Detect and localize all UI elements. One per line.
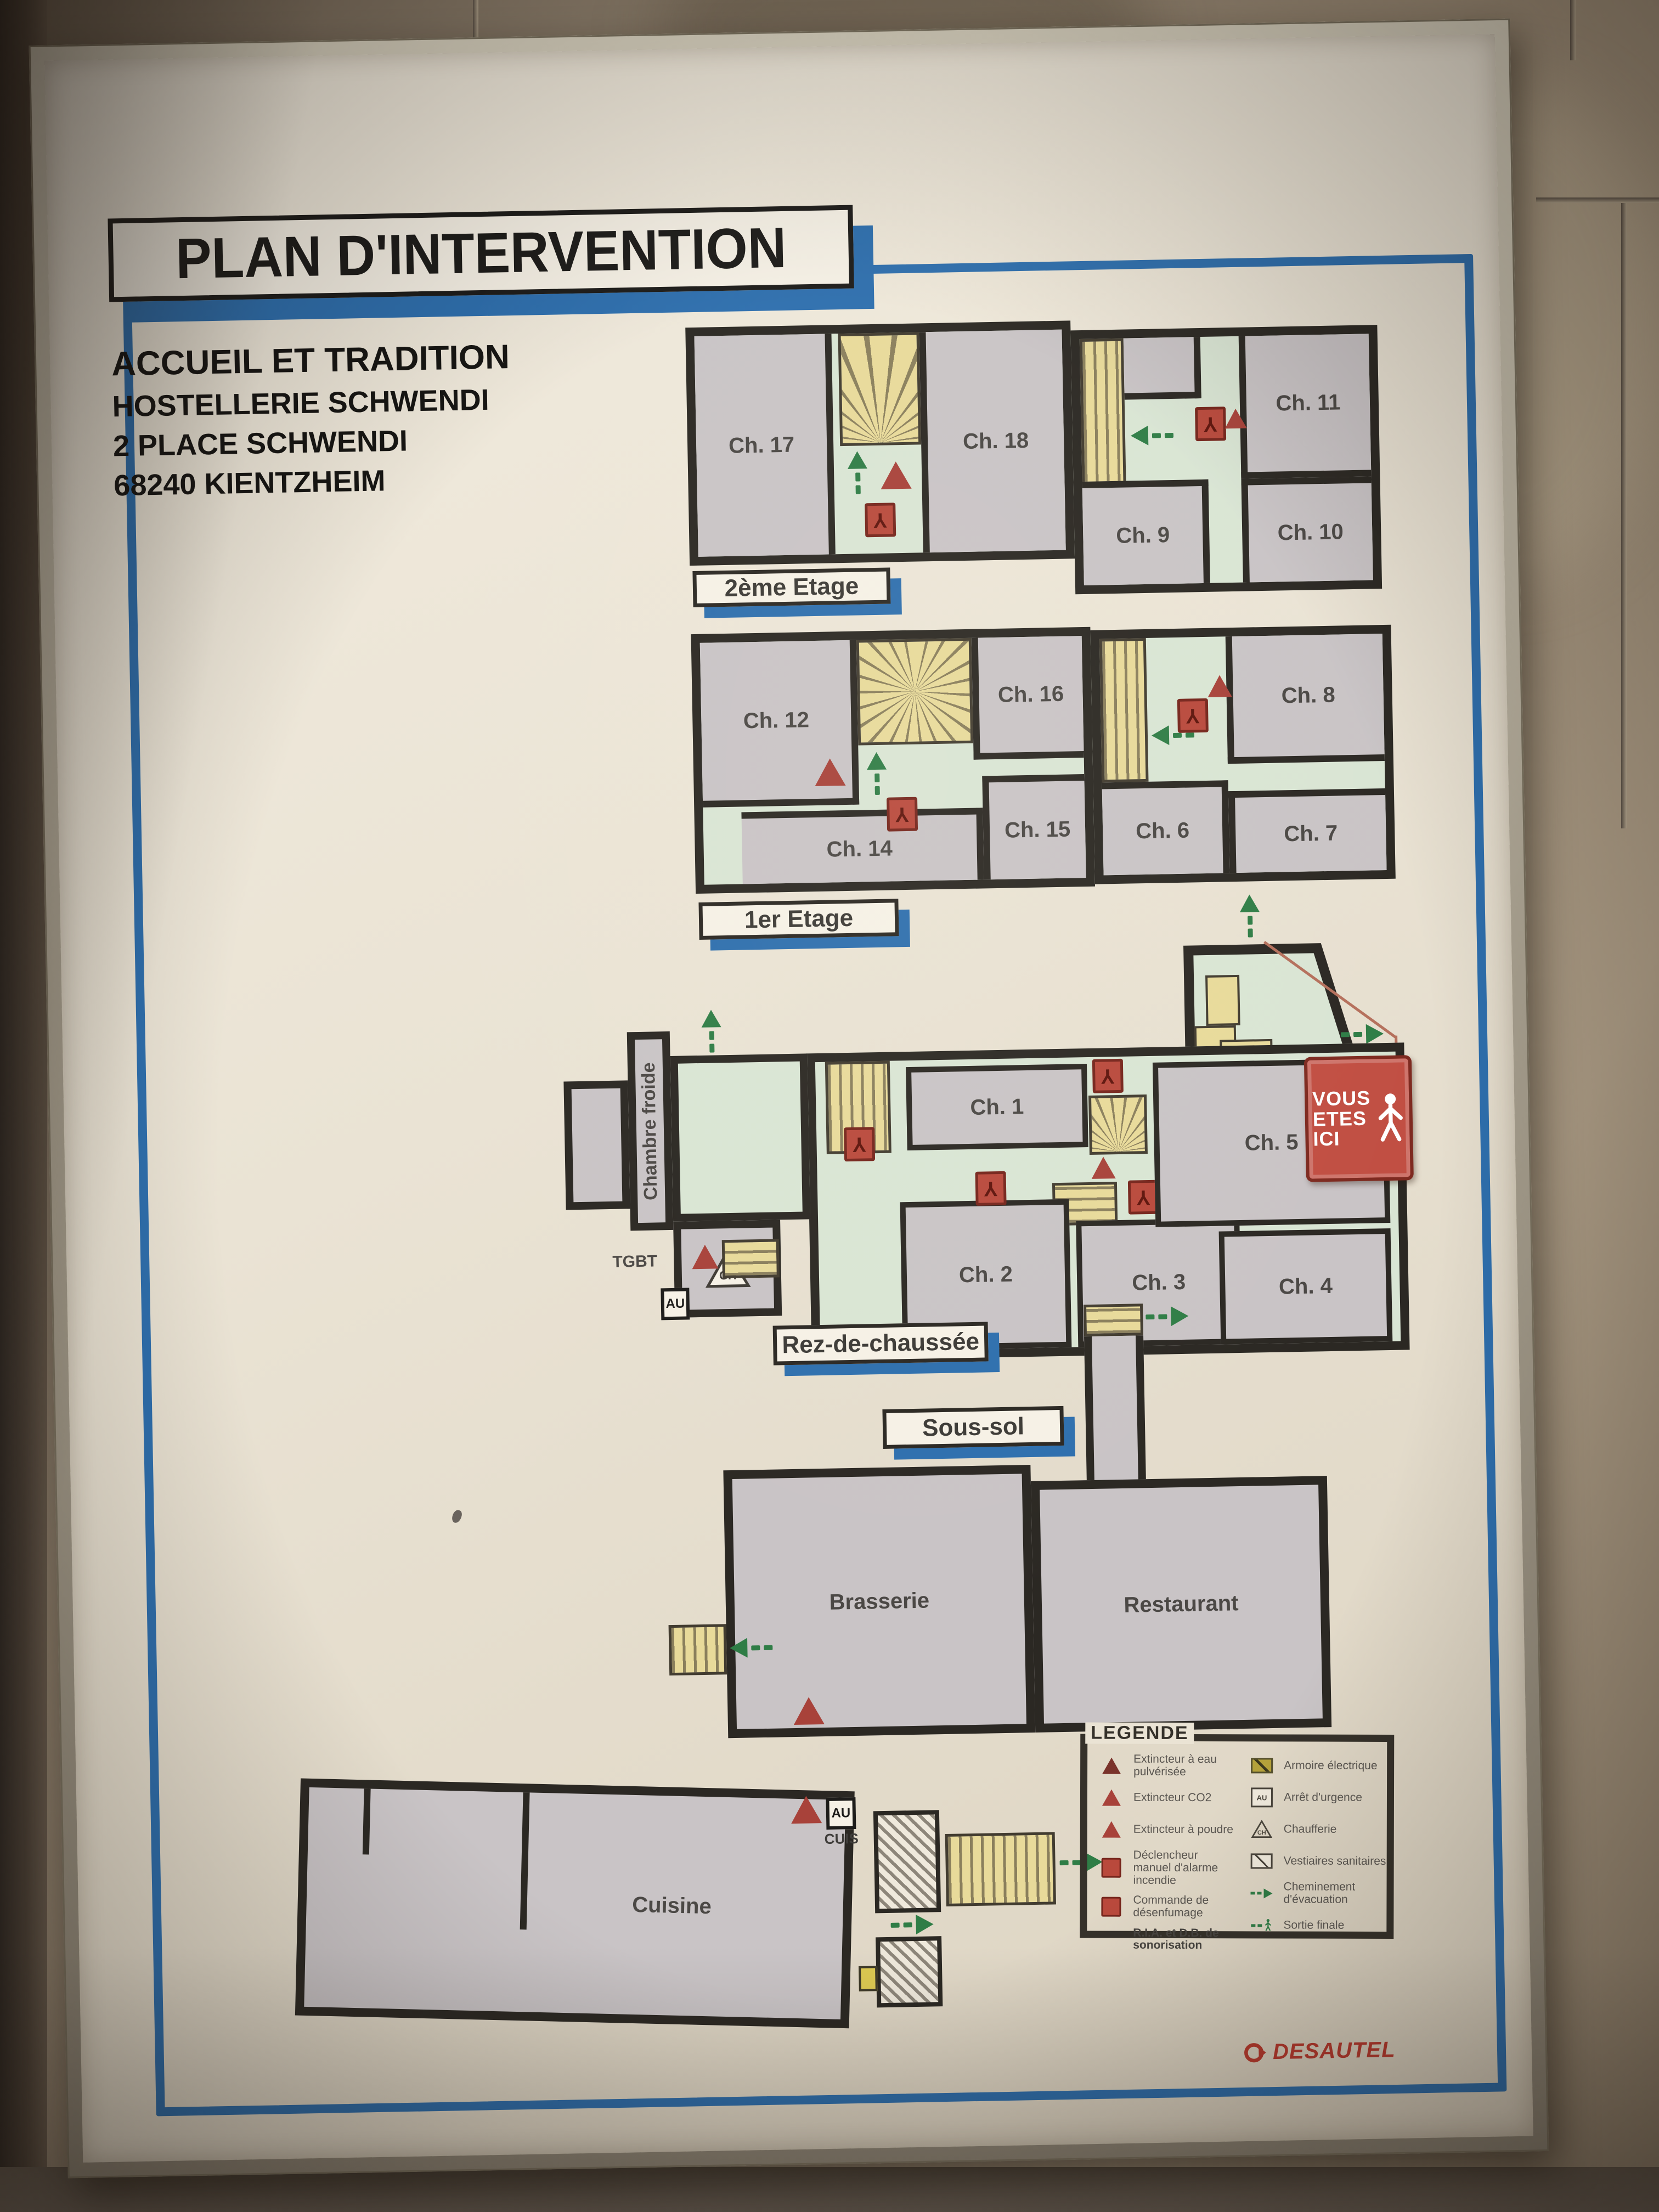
mortar-joint (1621, 198, 1627, 828)
photo-of-framed-plan: PLAN D'INTERVENTION ACCUEIL ET TRADITION… (0, 0, 1659, 2212)
smoke-control-icon (1097, 1897, 1125, 1917)
legend-item: AU Arrêt d'urgence (1248, 1785, 1388, 1810)
room-ch17: Ch. 17 (695, 334, 836, 557)
vestiaires-hatched-area (873, 1810, 941, 1913)
emergency-stop-kitchen-box: AU (826, 1797, 856, 1830)
alarm-call-point-icon: Y (844, 1127, 875, 1161)
cuisine-partition-wall (363, 1788, 371, 1854)
brand-name: DESAUTEL (1273, 2038, 1396, 2064)
legend-item: Cheminement d'évacuation (1247, 1881, 1387, 1906)
room-ch18: Ch. 18 (919, 330, 1065, 553)
room-brasserie: Brasserie (723, 1465, 1035, 1738)
legend-item: Extincteur CO2 (1097, 1786, 1235, 1810)
room-chambre-froide: Chambre froide (627, 1031, 674, 1231)
extinguisher-triangle-icon (692, 1244, 719, 1269)
room-ch11: Ch. 11 (1239, 334, 1372, 478)
rdc-left-corridor (670, 1053, 810, 1222)
legend-item-label: Extincteur à poudre (1133, 1824, 1233, 1836)
address-line-2: HOSTELLERIE SCHWENDI (112, 383, 489, 424)
room-label: Ch. 16 (998, 681, 1064, 707)
floor-label-text: 2ème Etage (724, 573, 859, 602)
extinguisher-powder-icon (1097, 1821, 1126, 1838)
legend-item: R.I.A. et D.B. de sonorisation (1097, 1927, 1235, 1952)
room-label: Restaurant (1124, 1591, 1239, 1618)
legend-right-column: Armoire électrique AU Arrêt d'urgence CH (1247, 1753, 1388, 1938)
room-label: Ch. 12 (743, 708, 809, 733)
vestiaires-hatched-area (876, 1936, 943, 2007)
legend-item-label: Déclencheur manuel d'alarme incendie (1133, 1849, 1235, 1887)
room-label: Ch. 11 (1276, 390, 1341, 416)
mortar-joint (1536, 198, 1659, 203)
room-ch7: Ch. 7 (1228, 788, 1387, 873)
legend-item-label: Extincteur CO2 (1133, 1792, 1211, 1804)
floorplan-2e-right-block: Ch. 11 Ch. 9 Ch. 10 Y (1070, 325, 1382, 594)
floor-label-text: Rez-de-chaussée (782, 1328, 979, 1359)
stairs-2e-right (1080, 338, 1126, 504)
room-label: Ch. 15 (1005, 817, 1071, 843)
legend-item: Vestiaires sanitaires (1248, 1849, 1388, 1874)
cuis-label: CUIS (824, 1830, 859, 1848)
svg-text:CH: CH (1257, 1830, 1266, 1836)
cuisine-partition-wall (520, 1792, 530, 1929)
alarm-call-point-icon: Y (887, 797, 918, 832)
legend-item-label: Chaufferie (1284, 1823, 1337, 1836)
legend-item-label: Cheminement d'évacuation (1283, 1881, 1387, 1906)
legend-item: Extincteur à eau pulvérisée (1097, 1753, 1235, 1779)
room-label: Ch. 10 (1277, 520, 1344, 545)
final-exit-icon (1247, 1919, 1276, 1932)
address-line-4: 68240 KIENTZHEIM (114, 464, 386, 503)
room-label: Cuisine (632, 1892, 712, 1918)
legend-item-label: Armoire électrique (1284, 1759, 1377, 1772)
extinguisher-water-icon (1097, 1757, 1126, 1774)
room-ch6: Ch. 6 (1102, 780, 1230, 875)
legend-item: CH Chaufferie (1248, 1817, 1388, 1842)
you-are-here-line: ICI (1313, 1128, 1372, 1150)
you-are-here-text: VOUS ETES ICI (1312, 1088, 1372, 1149)
emergency-stop-icon: AU (1248, 1787, 1276, 1807)
evacuation-arrow-left-icon (1131, 425, 1178, 446)
legend-item: Sortie finale (1247, 1914, 1387, 1938)
soussol-corridor-column (1084, 1335, 1146, 1489)
stairs-soussol-left (669, 1624, 727, 1675)
you-are-here-line: VOUS (1312, 1088, 1371, 1109)
electrical-cabinet-icon (1248, 1758, 1276, 1773)
room-label: Ch. 4 (1279, 1273, 1333, 1299)
legend-title: LEGENDE (1085, 1723, 1194, 1745)
alarm-call-point-icon: Y (1177, 698, 1209, 733)
stairs-2e-left (838, 332, 921, 446)
alarm-call-point-icon: Y (865, 503, 896, 537)
alarm-call-point-icon: Y (1195, 407, 1226, 441)
legend-item: Commande de désenfumage (1097, 1894, 1235, 1920)
extinguisher-triangle-icon (815, 758, 846, 786)
legend-item: Déclencheur manuel d'alarme incendie (1097, 1849, 1235, 1887)
room-label: Ch. 6 (1136, 819, 1190, 844)
room-label: Ch. 3 (1132, 1269, 1186, 1295)
address-line-3: 2 PLACE SCHWENDI (112, 424, 408, 464)
room-label: Ch. 18 (963, 428, 1029, 454)
floor-label-soussol: Sous-sol (882, 1406, 1064, 1449)
room-ch9: Ch. 9 (1082, 479, 1210, 585)
emergency-stop-label: AU (831, 1805, 850, 1821)
evacuation-arrow-up-icon (1239, 894, 1260, 938)
floorplan-1er-right-block: Ch. 8 Ch. 6 Ch. 7 Y (1090, 625, 1395, 884)
room-ch10: Ch. 10 (1241, 476, 1373, 582)
evacuation-arrow-right-icon (1145, 1306, 1189, 1327)
evacuation-arrow-left-icon (730, 1638, 777, 1658)
legend-box: LEGENDE Extincteur à eau pulvérisée Exti… (1080, 1734, 1394, 1939)
evacuation-route-icon (1247, 1888, 1276, 1898)
manual-alarm-icon (1097, 1858, 1126, 1878)
room-ch16: Ch. 16 (972, 636, 1084, 760)
room-label: Ch. 9 (1116, 523, 1170, 549)
alarm-call-point-icon: Y (1092, 1059, 1124, 1093)
floorplan-2e-left-block: Ch. 17 Ch. 18 Y (685, 320, 1075, 566)
emergency-stop-box: AU (661, 1288, 690, 1320)
stairs-soussol-upper (1084, 1304, 1143, 1336)
brand-mark: DESAUTEL (1244, 2038, 1396, 2065)
stairs-1er-right (1099, 638, 1149, 783)
legend-item-label: Arrêt d'urgence (1284, 1791, 1362, 1804)
address-line-1: ACCUEIL ET TRADITION (111, 337, 510, 383)
room-2e-upper-left (1124, 337, 1201, 400)
legend-item: Armoire électrique (1248, 1753, 1388, 1778)
evacuation-arrow-right-icon (890, 1914, 934, 1934)
legend-left-column: Extincteur à eau pulvérisée Extincteur C… (1097, 1753, 1235, 1953)
room-label: Ch. 5 (1244, 1130, 1299, 1156)
evacuation-arrow-up-icon (866, 752, 887, 795)
rdc-annex-room (563, 1080, 630, 1210)
evacuation-arrow-up-icon (847, 451, 867, 494)
room-label: Ch. 2 (959, 1262, 1013, 1288)
legend-item-label: Commande de désenfumage (1133, 1894, 1235, 1920)
stairs-cuisine-exit (945, 1832, 1056, 1906)
tgbt-label: TGBT (612, 1252, 657, 1271)
you-are-here-line: ETES (1313, 1108, 1372, 1130)
evacuation-arrow-up-icon (701, 1009, 721, 1053)
legend-item-label: Sortie finale (1283, 1919, 1344, 1932)
room-label: Ch. 17 (729, 432, 795, 458)
stairs-rdc-fan (1088, 1094, 1148, 1155)
legend-item-label: Vestiaires sanitaires (1284, 1855, 1386, 1867)
room-cuisine: Cuisine (295, 1779, 855, 2029)
room-label: Ch. 8 (1281, 682, 1335, 708)
legend-item: Extincteur à poudre (1097, 1818, 1235, 1842)
extinguisher-triangle-icon (1091, 1156, 1116, 1179)
room-ch4: Ch. 4 (1219, 1228, 1393, 1345)
room-label: Ch. 14 (826, 836, 893, 862)
alarm-call-point-icon: Y (975, 1171, 1007, 1206)
poster-frame: PLAN D'INTERVENTION ACCUEIL ET TRADITION… (29, 19, 1549, 2179)
brand-logo-icon (1244, 2040, 1269, 2065)
floor-label-text: Sous-sol (922, 1413, 1025, 1442)
boiler-icon: CH (1248, 1820, 1276, 1838)
person-icon (1376, 1087, 1406, 1148)
poster-title-box: PLAN D'INTERVENTION (108, 205, 854, 302)
poster-title: PLAN D'INTERVENTION (175, 215, 787, 291)
room-label: Ch. 1 (970, 1094, 1024, 1120)
floor-label-text: 1er Etage (744, 905, 854, 934)
kitchen-marker (859, 1966, 878, 1991)
room-label: Ch. 7 (1284, 821, 1338, 847)
floor-label-2e: 2ème Etage (692, 567, 890, 607)
room-ch14: Ch. 14 (741, 808, 984, 884)
room-label: Chambre froide (638, 1062, 662, 1200)
room-label: Brasserie (829, 1588, 929, 1615)
legend-item-label: R.I.A. et D.B. de sonorisation (1133, 1927, 1235, 1952)
extinguisher-triangle-icon (791, 1796, 822, 1824)
room-ch15: Ch. 15 (982, 774, 1086, 879)
extinguisher-co2-icon (1097, 1790, 1126, 1806)
intervention-plan-poster: PLAN D'INTERVENTION ACCUEIL ET TRADITION… (44, 34, 1533, 2163)
emergency-stop-label: AU (665, 1296, 685, 1312)
evacuation-arrow-right-icon (1341, 1024, 1384, 1044)
extinguisher-triangle-icon (1207, 675, 1232, 697)
sanitary-room-icon (1248, 1853, 1276, 1869)
extinguisher-triangle-icon (1224, 409, 1247, 429)
floorplan-1er-left-block: Ch. 12 Ch. 16 Ch. 14 Ch. 15 Y (691, 627, 1095, 894)
mortar-joint (1570, 0, 1576, 60)
floor-label-1er: 1er Etage (698, 899, 899, 940)
extinguisher-triangle-icon (793, 1697, 825, 1725)
you-are-here-sign: VOUS ETES ICI (1304, 1055, 1414, 1182)
stairs-rdc-bottom (722, 1239, 780, 1278)
stairs-1er-left-spiral (856, 638, 973, 746)
room-restaurant: Restaurant (1031, 1476, 1331, 1733)
legend-item-label: Extincteur à eau pulvérisée (1133, 1753, 1235, 1779)
floor-label-rdc: Rez-de-chaussée (773, 1322, 989, 1365)
room-ch8: Ch. 8 (1226, 634, 1385, 764)
room-ch1: Ch. 1 (906, 1064, 1088, 1150)
extinguisher-triangle-icon (881, 461, 912, 489)
